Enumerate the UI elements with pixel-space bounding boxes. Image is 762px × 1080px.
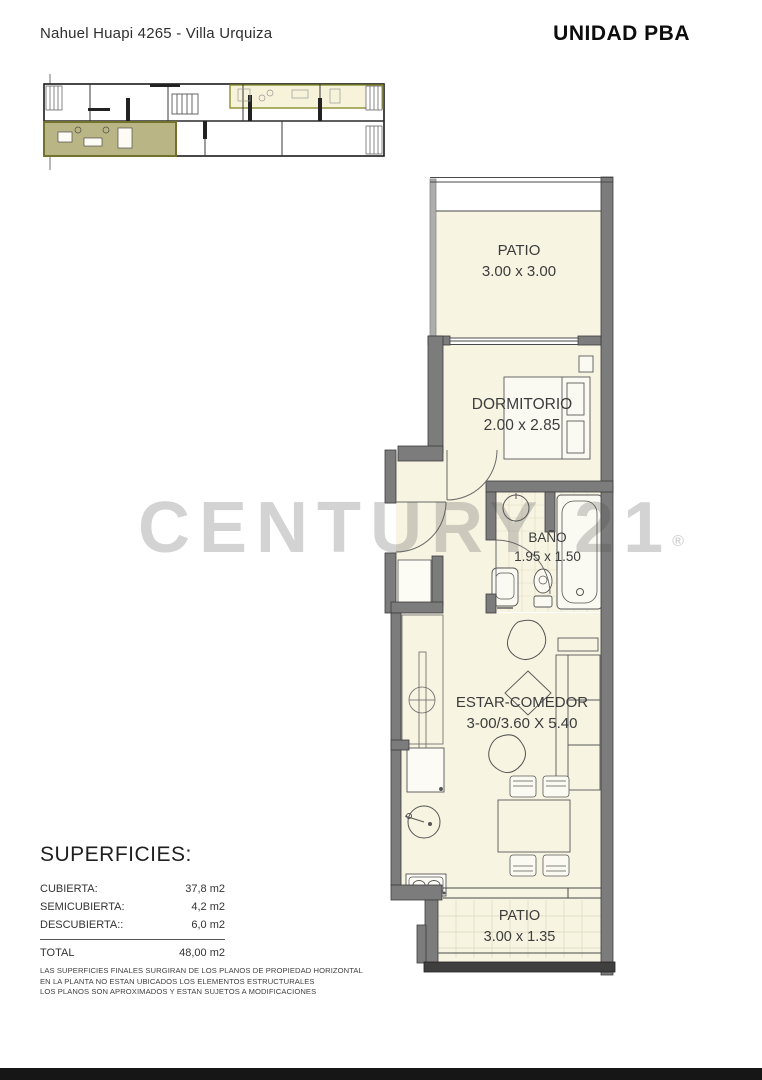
- superficies-row-cubierta: CUBIERTA: 37,8 m2: [40, 883, 225, 895]
- disclaimer-line-3: LOS PLANOS SON APROXIMADOS Y ESTAN SUJET…: [40, 987, 363, 998]
- superficies-divider: [40, 939, 225, 940]
- superficies-row-semicubierta: SEMICUBIERTA: 4,2 m2: [40, 901, 225, 913]
- superficies-title: SUPERFICIES:: [40, 843, 225, 867]
- row-label: SEMICUBIERTA:: [40, 901, 125, 913]
- unit-title: UNIDAD PBA: [553, 22, 690, 46]
- header-title: Nahuel Huapi 4265 - Villa Urquiza: [40, 25, 272, 42]
- room-label-dormitorio: DORMITORIO 2.00 x 2.85: [443, 394, 601, 436]
- row-label: CUBIERTA:: [40, 883, 98, 895]
- disclaimer: LAS SUPERFICIES FINALES SURGIRAN DE LOS …: [40, 966, 363, 998]
- room-dimensions: 1.95 x 1.50: [496, 547, 599, 566]
- bottom-bar: [0, 1068, 762, 1080]
- room-dimensions: 3.00 x 3.00: [437, 261, 601, 282]
- row-label: DESCUBIERTA::: [40, 919, 123, 931]
- room-name: DORMITORIO: [443, 394, 601, 415]
- room-label-patio-top: PATIO 3.00 x 3.00: [437, 240, 601, 282]
- key-plan: [44, 74, 384, 170]
- disclaimer-line-2: EN LA PLANTA NO ESTAN UBICADOS LOS ELEME…: [40, 977, 363, 988]
- total-value: 48,00 m2: [179, 947, 225, 959]
- key-plan-highlighted-unit: [44, 122, 176, 156]
- watermark: CENTURY 21®: [138, 488, 684, 582]
- room-dimensions: 3-00/3.60 X 5.40: [443, 713, 601, 734]
- row-value: 37,8 m2: [185, 883, 225, 895]
- room-dimensions: 2.00 x 2.85: [443, 415, 601, 436]
- room-label-patio-bottom: PATIO 3.00 x 1.35: [438, 906, 601, 948]
- room-name: ESTAR-COMEDOR: [443, 692, 601, 713]
- superficies-section: SUPERFICIES: CUBIERTA: 37,8 m2 SEMICUBIE…: [40, 843, 225, 965]
- registered-trademark-icon: ®: [672, 533, 684, 550]
- room-name: PATIO: [437, 240, 601, 261]
- room-dimensions: 3.00 x 1.35: [438, 927, 601, 948]
- patio-bottom-sill: [424, 962, 615, 972]
- room-label-bano: BAÑO 1.95 x 1.50: [496, 528, 599, 566]
- room-name: PATIO: [438, 906, 601, 927]
- disclaimer-line-1: LAS SUPERFICIES FINALES SURGIRAN DE LOS …: [40, 966, 363, 977]
- superficies-total-row: TOTAL 48,00 m2: [40, 947, 225, 959]
- room-name: BAÑO: [496, 528, 599, 547]
- key-plan-unit-strip: [230, 85, 383, 108]
- total-label: TOTAL: [40, 947, 74, 959]
- room-label-estar-comedor: ESTAR-COMEDOR 3-00/3.60 X 5.40: [443, 692, 601, 734]
- row-value: 4,2 m2: [191, 901, 225, 913]
- superficies-row-descubierta: DESCUBIERTA:: 6,0 m2: [40, 919, 225, 931]
- row-value: 6,0 m2: [191, 919, 225, 931]
- fridge-icon: [407, 748, 444, 792]
